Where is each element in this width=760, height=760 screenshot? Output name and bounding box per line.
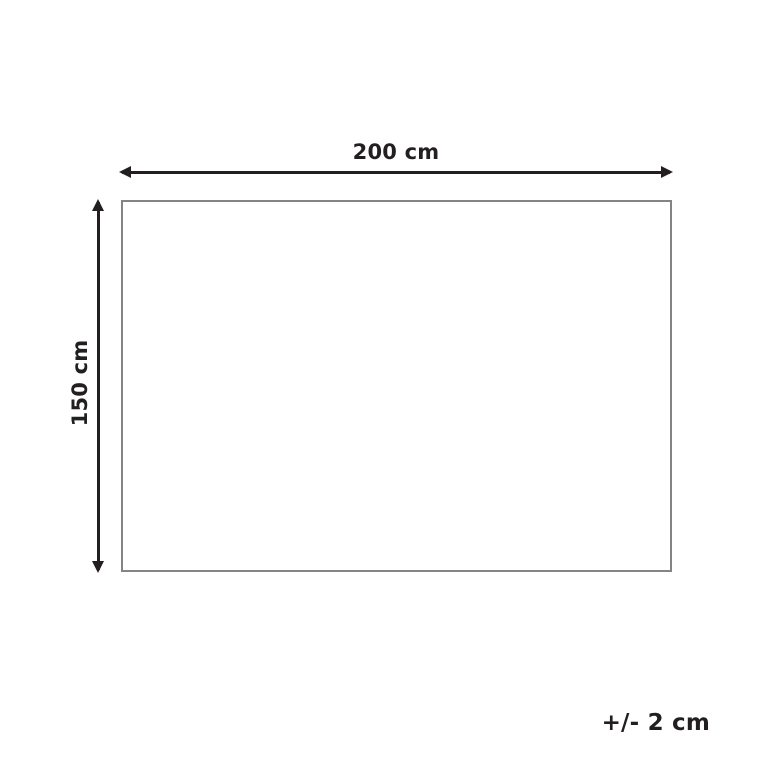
measured-rectangle <box>121 200 672 572</box>
height-dimension-label: 150 cm <box>67 323 93 443</box>
width-dimension-label: 200 cm <box>120 141 672 164</box>
tolerance-label: +/- 2 cm <box>602 710 710 736</box>
width-dimension-arrow <box>119 162 673 184</box>
height-arrow-line <box>97 202 100 570</box>
arrow-right-icon <box>661 166 673 178</box>
dimension-diagram: 200 cm 150 cm +/- 2 cm <box>0 0 760 760</box>
width-arrow-line <box>122 171 670 174</box>
arrow-down-icon <box>92 561 104 573</box>
